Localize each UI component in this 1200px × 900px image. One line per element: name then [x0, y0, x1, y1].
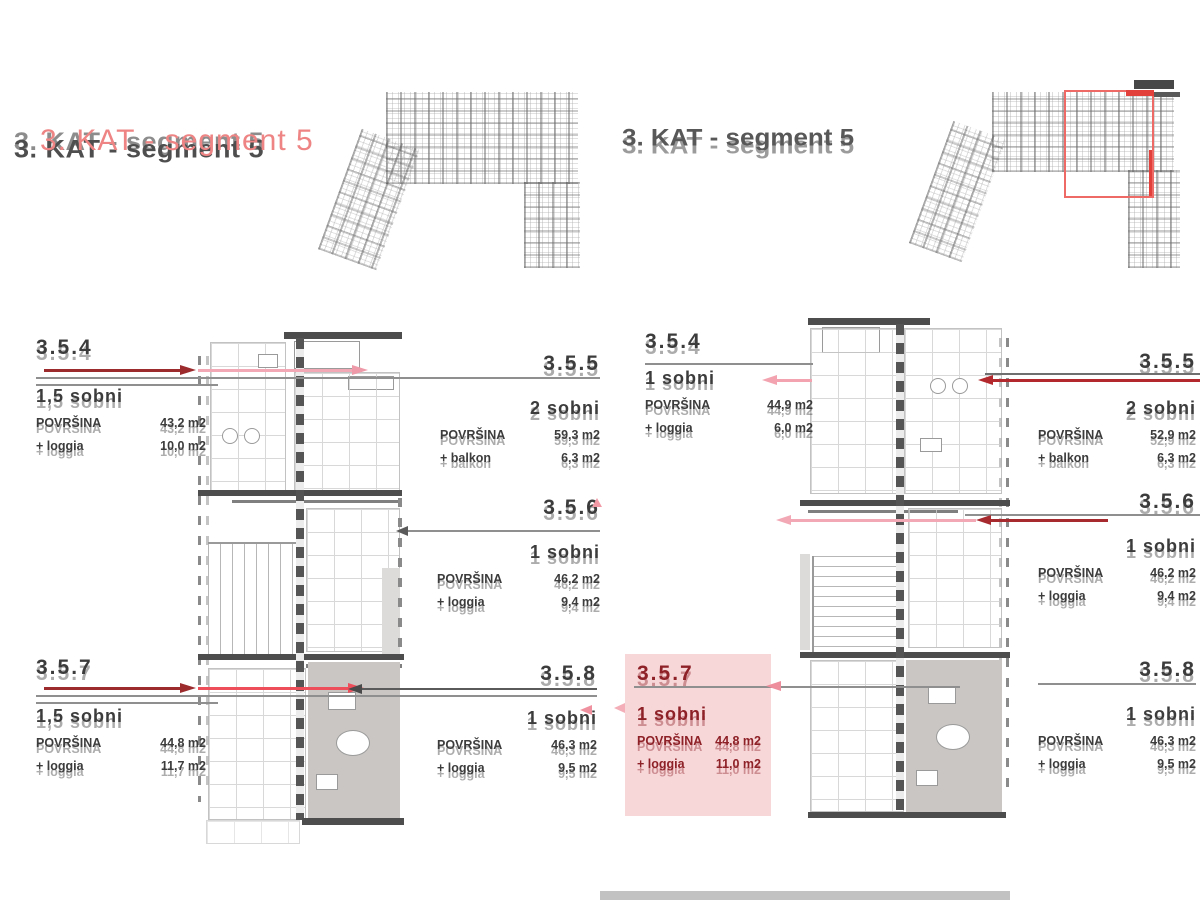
floor-plan-sheet: 3. KAT - segment 5 3. KAT - segment 5	[0, 0, 1200, 900]
unit-extra-row: + balkon 6,3 m2	[1038, 451, 1196, 465]
leader-rule	[645, 363, 813, 365]
corridor-wall	[296, 338, 304, 820]
wall	[800, 652, 1010, 658]
arrow-left-icon	[976, 515, 991, 525]
fixture	[244, 428, 260, 444]
leader-rule	[36, 695, 597, 697]
extra-value: 6,3 m2	[1157, 451, 1196, 465]
unit-label-left-3-5-6: 3.5.6 1 sobni POVRŠINA 46,2 m2 + loggia …	[437, 496, 600, 609]
unit-extra-row: + loggia 9,4 m2	[1038, 589, 1196, 603]
extra-value: 9,5 m2	[1157, 757, 1196, 771]
arrow-left-icon	[396, 526, 408, 536]
arrow-line	[790, 519, 976, 522]
leader-rule	[36, 384, 218, 386]
area-value: 59,3 m2	[554, 428, 600, 442]
wall	[800, 500, 1010, 506]
page-title-left: 3. KAT - segment 5 3. KAT - segment 5	[14, 124, 354, 174]
fixture	[920, 438, 942, 452]
extra-value: 11,7 m2	[161, 759, 206, 773]
extra-label: + loggia	[637, 757, 685, 771]
unit-type: 1 sobni	[637, 704, 771, 725]
room	[208, 668, 306, 820]
arrow-left-icon	[762, 375, 777, 385]
wall	[232, 500, 402, 503]
arrow-left-icon	[348, 684, 362, 694]
unit-label-left-3-5-8: 3.5.8 1 sobni POVRŠINA 46,3 m2 + loggia …	[437, 662, 597, 775]
overview-highlight-rect	[1064, 90, 1154, 198]
area-label: POVRŠINA	[36, 736, 101, 750]
unit-type: 1 sobni	[437, 542, 600, 563]
unit-type: 1 sobni	[1038, 536, 1196, 557]
unit-id: 3.5.6	[1038, 490, 1196, 514]
unit-extra-row: + loggia 11,0 m2	[637, 757, 761, 771]
unit-extra-row: + loggia 10,0 m2	[36, 439, 206, 453]
unit-area-row: POVRŠINA 46,2 m2	[1038, 566, 1196, 580]
unit-area-row: POVRŠINA 59,3 m2	[440, 428, 600, 442]
wall	[302, 818, 404, 825]
unit-type: 1,5 sobni	[36, 706, 206, 727]
extra-label: + loggia	[1038, 757, 1086, 771]
arrow-line	[44, 687, 180, 690]
unit-label-right-3-5-8: 3.5.8 1 sobni POVRŠINA 46,3 m2 + loggia …	[1038, 658, 1196, 771]
area-value: 46,3 m2	[1150, 734, 1196, 748]
arrow-line	[992, 379, 1200, 382]
arrow-left-icon	[776, 515, 791, 525]
leader-rule	[965, 514, 1200, 516]
extra-label: + loggia	[437, 595, 485, 609]
unit-id: 3.5.7	[637, 662, 771, 686]
room	[206, 820, 300, 844]
unit-area-row: POVRŠINA 44,8 m2	[36, 736, 206, 750]
extra-value: 6,0 m2	[774, 421, 813, 435]
unit-type: 2 sobni	[440, 398, 600, 419]
arrow-line	[362, 688, 597, 690]
area-value: 43,2 m2	[160, 416, 206, 430]
overview-dark-bar	[1154, 92, 1180, 97]
unit-type: 1 sobni	[437, 708, 597, 729]
unit-extra-row: + loggia 9,5 m2	[437, 761, 597, 775]
arrow-line	[44, 369, 180, 372]
shaft	[800, 554, 810, 650]
unit-extra-row: + loggia 9,4 m2	[437, 595, 600, 609]
arrow-right-icon	[352, 365, 368, 375]
area-label: POVRŠINA	[437, 572, 502, 586]
arrow-right-icon	[180, 365, 196, 375]
room	[810, 328, 900, 494]
unit-area-row: POVRŠINA 44,8 m2	[637, 734, 761, 748]
unit-label-left-3-5-4: 3.5.4 1,5 sobni POVRŠINA 43,2 m2 + loggi…	[36, 336, 206, 453]
extra-label: + loggia	[437, 761, 485, 775]
unit-extra-row: + loggia 6,0 m2	[645, 421, 813, 435]
footer-bar	[600, 891, 1010, 900]
leader-rule	[985, 373, 1200, 375]
arrow-line	[198, 369, 352, 372]
overview-left-tower	[524, 182, 580, 268]
arrow-line	[776, 379, 812, 382]
extra-value: 10,0 m2	[160, 439, 206, 453]
unit-area-row: POVRŠINA 46,3 m2	[437, 738, 597, 752]
shaded-unit	[906, 660, 1002, 812]
unit-area-row: POVRŠINA 44,9 m2	[645, 398, 813, 412]
leader-rule	[36, 377, 600, 379]
balcony-edge-dashes	[1006, 338, 1009, 790]
unit-id: 3.5.5	[440, 352, 600, 376]
unit-area-row: POVRŠINA 52,9 m2	[1038, 428, 1196, 442]
wall	[808, 318, 930, 325]
unit-extra-row: + loggia 11,7 m2	[36, 759, 206, 773]
page-title-left-text: 3. KAT - segment 5	[40, 124, 314, 158]
unit-label-right-3-5-5: 3.5.5 2 sobni POVRŠINA 52,9 m2 + balkon …	[1038, 350, 1196, 465]
area-label: POVRŠINA	[437, 738, 502, 752]
room	[908, 508, 1002, 648]
room	[294, 372, 400, 492]
unit-type: 2 sobni	[1038, 398, 1196, 419]
overview-dark-bar	[1134, 80, 1174, 89]
stairs	[812, 556, 900, 652]
table	[936, 724, 970, 750]
unit-label-right-3-5-6: 3.5.6 1 sobni POVRŠINA 46,2 m2 + loggia …	[1038, 490, 1196, 603]
unit-id: 3.5.8	[437, 662, 597, 686]
fixture	[316, 774, 338, 790]
floor-plan-left	[198, 332, 404, 828]
table	[336, 730, 370, 756]
overview-left-band	[386, 92, 578, 184]
terrace-decking	[208, 542, 296, 658]
leader-rule	[400, 530, 600, 532]
arrow-left-icon	[614, 703, 625, 713]
extra-value: 11,0 m2	[716, 757, 761, 771]
extra-value: 9,5 m2	[558, 761, 597, 775]
arrow-left-icon	[580, 705, 592, 715]
unit-label-left-3-5-5: 3.5.5 2 sobni POVRŠINA 59,3 m2 + balkon …	[440, 352, 600, 465]
unit-extra-row: + balkon 6,3 m2	[440, 451, 600, 465]
unit-label-right-3-5-4: 3.5.4 1 sobni POVRŠINA 44,9 m2 + loggia …	[645, 330, 813, 435]
fixture	[258, 354, 278, 368]
unit-label-left-3-5-7: 3.5.7 1,5 sobni POVRŠINA 44,8 m2 + loggi…	[36, 656, 206, 773]
unit-type: 1 sobni	[1038, 704, 1196, 725]
unit-id: 3.5.4	[36, 336, 206, 360]
extra-value: 9,4 m2	[1157, 589, 1196, 603]
unit-area-row: POVRŠINA 46,2 m2	[437, 572, 600, 586]
unit-area-row: POVRŠINA 43,2 m2	[36, 416, 206, 430]
arrow-line	[198, 687, 348, 690]
unit-label-right-3-5-7-highlighted: 3.5.7 1 sobni POVRŠINA 44,8 m2 + loggia …	[625, 654, 771, 816]
leader-rule	[634, 686, 960, 688]
unit-area-row: POVRŠINA 46,3 m2	[1038, 734, 1196, 748]
area-value: 46,2 m2	[1150, 566, 1196, 580]
extra-label: + balkon	[440, 451, 491, 465]
area-value: 44,9 m2	[767, 398, 813, 412]
unit-id: 3.5.8	[1038, 658, 1196, 682]
arrow-right-icon	[180, 683, 196, 693]
extra-label: + loggia	[36, 439, 84, 453]
extra-label: + balkon	[1038, 451, 1089, 465]
extra-label: + loggia	[645, 421, 693, 435]
extra-label: + loggia	[36, 759, 84, 773]
area-value: 44,8 m2	[715, 734, 761, 748]
area-label: POVRŠINA	[637, 734, 702, 748]
unit-id: 3.5.7	[36, 656, 206, 680]
unit-id: 3.5.5	[1038, 350, 1196, 374]
wall	[808, 812, 1006, 818]
area-value: 46,3 m2	[551, 738, 597, 752]
area-value: 52,9 m2	[1150, 428, 1196, 442]
page-title-right: 3. KAT - segment 5	[622, 123, 854, 152]
arrow-left-icon	[978, 375, 993, 385]
unit-id: 3.5.6	[437, 496, 600, 520]
extra-label: + loggia	[1038, 589, 1086, 603]
fixture	[916, 770, 938, 786]
fixture	[930, 378, 946, 394]
fixture	[222, 428, 238, 444]
overview-right-wing	[909, 121, 1006, 262]
unit-id: 3.5.4	[645, 330, 813, 354]
corridor-wall	[896, 324, 904, 810]
area-label: POVRŠINA	[645, 398, 710, 412]
wall-dashes	[398, 498, 402, 658]
room	[904, 328, 1002, 494]
leader-rule	[1038, 683, 1196, 685]
unit-type: 1,5 sobni	[36, 386, 206, 407]
floor-plan-right	[800, 318, 1010, 818]
fixture	[928, 686, 956, 704]
area-label: POVRŠINA	[440, 428, 505, 442]
arrow-line	[990, 519, 1108, 522]
extra-value: 9,4 m2	[561, 595, 600, 609]
overview-highlight-accent	[1149, 150, 1152, 196]
area-label: POVRŠINA	[36, 416, 101, 430]
unit-extra-row: + loggia 9,5 m2	[1038, 757, 1196, 771]
area-label: POVRŠINA	[1038, 428, 1103, 442]
area-label: POVRŠINA	[1038, 566, 1103, 580]
overview-highlight-accent	[1126, 90, 1154, 96]
arrow-up-icon	[592, 498, 602, 507]
leader-rule	[36, 702, 218, 704]
area-value: 46,2 m2	[554, 572, 600, 586]
room	[810, 660, 904, 812]
extra-value: 6,3 m2	[561, 451, 600, 465]
area-label: POVRŠINA	[1038, 734, 1103, 748]
arrow-left-icon	[766, 681, 781, 691]
area-value: 44,8 m2	[160, 736, 206, 750]
fixture	[952, 378, 968, 394]
